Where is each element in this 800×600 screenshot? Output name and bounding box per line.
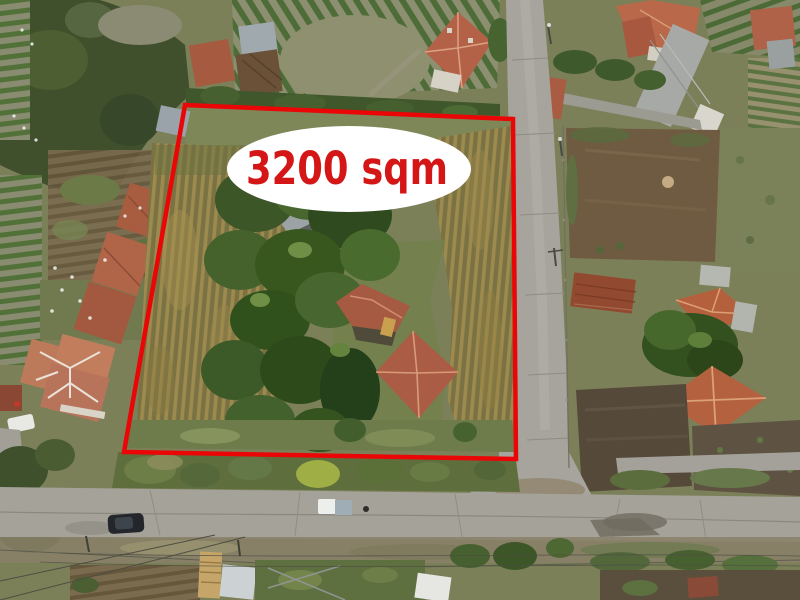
area-label-text: 3200 sqm (246, 142, 448, 195)
red-shed-left-edge (0, 385, 22, 411)
dirt-garden-right (566, 127, 800, 273)
area-label: 3200 sqm (227, 126, 471, 212)
bottom-gardens (0, 537, 800, 600)
parked-dark-car (107, 513, 144, 534)
aerial-photo: 3200 sqm (0, 0, 800, 600)
